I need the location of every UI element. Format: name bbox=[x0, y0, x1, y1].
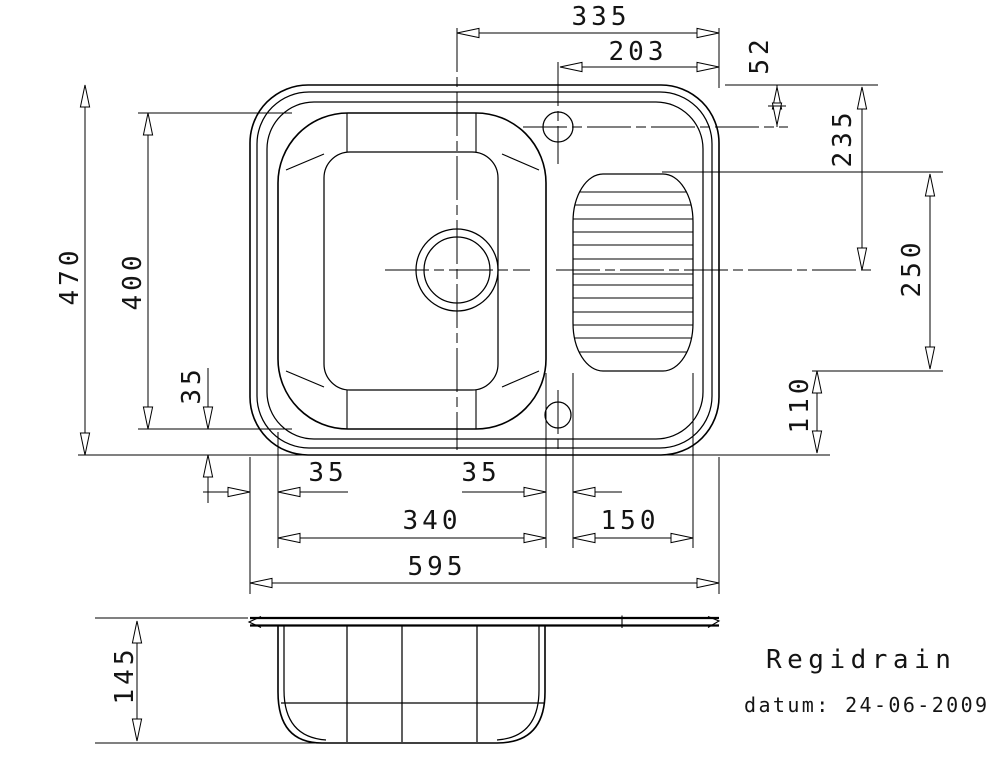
sink-technical-drawing: 335 203 52 470 400 35 235 250 110 35 35 … bbox=[0, 0, 992, 765]
dim-label-335: 335 bbox=[572, 2, 631, 32]
dim-label-470: 470 bbox=[55, 247, 85, 306]
drawing-title: Regidrain bbox=[766, 645, 956, 675]
dim-label-340: 340 bbox=[403, 506, 462, 536]
faucet-hole bbox=[523, 62, 788, 164]
dim-label-35-vertical: 35 bbox=[177, 365, 207, 404]
dim-label-235: 235 bbox=[828, 109, 858, 168]
drain-hole bbox=[385, 28, 530, 450]
title-block: Regidrain datum: 24-06-2009 bbox=[744, 645, 990, 717]
bowl-profile-inner-left bbox=[284, 626, 326, 740]
bowl-profile-outer bbox=[278, 626, 545, 743]
drainer-ribs bbox=[570, 192, 696, 352]
bowl-profile-inner-right bbox=[497, 626, 539, 740]
dim-label-203: 203 bbox=[609, 37, 668, 67]
dim-label-52: 52 bbox=[745, 35, 775, 74]
dim-label-110: 110 bbox=[785, 375, 815, 434]
dim-label-250: 250 bbox=[897, 239, 927, 298]
dim-label-145: 145 bbox=[110, 646, 140, 705]
dimension-labels: 335 203 52 470 400 35 235 250 110 35 35 … bbox=[55, 2, 927, 704]
dim-label-595: 595 bbox=[408, 552, 467, 582]
overflow-hole bbox=[545, 390, 571, 450]
dim-label-35-left: 35 bbox=[308, 458, 347, 488]
dim-label-400: 400 bbox=[118, 252, 148, 311]
drawing-sheet: 335 203 52 470 400 35 235 250 110 35 35 … bbox=[0, 0, 992, 765]
top-view bbox=[250, 28, 875, 455]
drainer-board bbox=[570, 174, 696, 371]
drawing-date: datum: 24-06-2009 bbox=[744, 693, 990, 717]
bowl bbox=[278, 113, 546, 429]
dim-label-35-right: 35 bbox=[461, 458, 500, 488]
dim-label-150: 150 bbox=[601, 506, 660, 536]
side-view bbox=[249, 616, 719, 744]
